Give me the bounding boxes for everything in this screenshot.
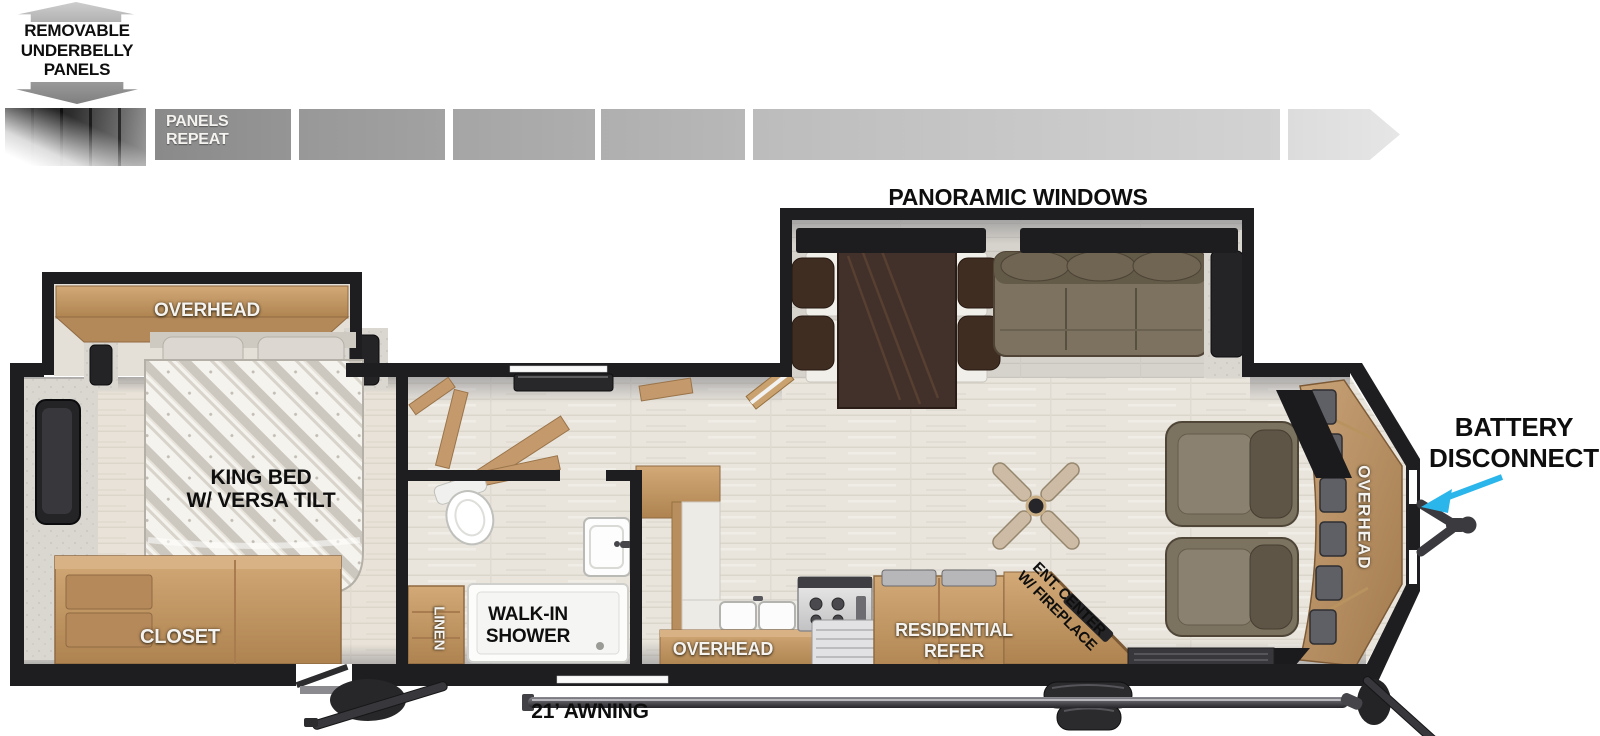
refrigerator-label: RESIDENTIAL REFER xyxy=(864,620,1044,662)
sofa xyxy=(994,251,1208,356)
underbelly-panel-4 xyxy=(601,109,745,160)
bedroom-overhead-label: OVERHEAD xyxy=(132,301,282,322)
panels-repeat-line1: PANELS xyxy=(166,113,276,131)
top-wall-window xyxy=(510,366,613,391)
king-bed xyxy=(145,332,363,594)
nose-trim-1 xyxy=(1409,470,1417,504)
kitchen-overhead-label: OVERHEAD xyxy=(648,640,798,660)
recliner-2 xyxy=(1166,538,1298,636)
bed-slideout-side-window xyxy=(84,338,118,390)
panels-repeat-label: PANELS REPEAT xyxy=(166,113,276,149)
underbelly-line2: UNDERBELLY xyxy=(4,41,150,61)
walk-in-shower-label: WALK-IN SHOWER xyxy=(448,604,608,648)
floorplan-page: REMOVABLE UNDERBELLY PANELS PANELS REPEA… xyxy=(0,0,1600,736)
underbelly-line3: PANELS xyxy=(4,60,150,80)
bathroom-sink xyxy=(584,518,632,576)
panels-repeat-line2: REPEAT xyxy=(166,131,276,149)
underbelly-line1: REMOVABLE xyxy=(4,21,150,41)
underbelly-note: REMOVABLE UNDERBELLY PANELS xyxy=(4,21,150,80)
underbelly-panel-2 xyxy=(299,109,445,160)
entry-mat xyxy=(1128,648,1274,666)
underbelly-panel-5 xyxy=(753,109,1280,160)
linen-label: LINEN xyxy=(430,596,447,660)
sink-left xyxy=(720,602,756,630)
closet-label: CLOSET xyxy=(105,626,255,648)
battery-disconnect-label: BATTERY DISCONNECT xyxy=(1404,412,1600,474)
underbelly-panel-dark xyxy=(5,108,146,166)
nose-trim-2 xyxy=(1409,550,1417,584)
hitch xyxy=(1421,504,1477,552)
battery-disconnect-arrow-icon xyxy=(1421,477,1502,513)
bottom-wall-window xyxy=(557,676,668,683)
dinette-table xyxy=(838,242,956,408)
underbelly-panel-3 xyxy=(453,109,595,160)
awning-label: 21’ AWNING xyxy=(490,700,690,723)
recliner-1 xyxy=(1166,422,1298,526)
king-bed-label: KING BED W/ VERSA TILT xyxy=(150,466,372,512)
front-overhead-label: OVERHEAD xyxy=(1354,442,1373,592)
front-stabilizer-jack xyxy=(1357,675,1438,736)
sink-right xyxy=(759,602,795,630)
panoramic-windows-label: PANORAMIC WINDOWS xyxy=(868,185,1168,210)
